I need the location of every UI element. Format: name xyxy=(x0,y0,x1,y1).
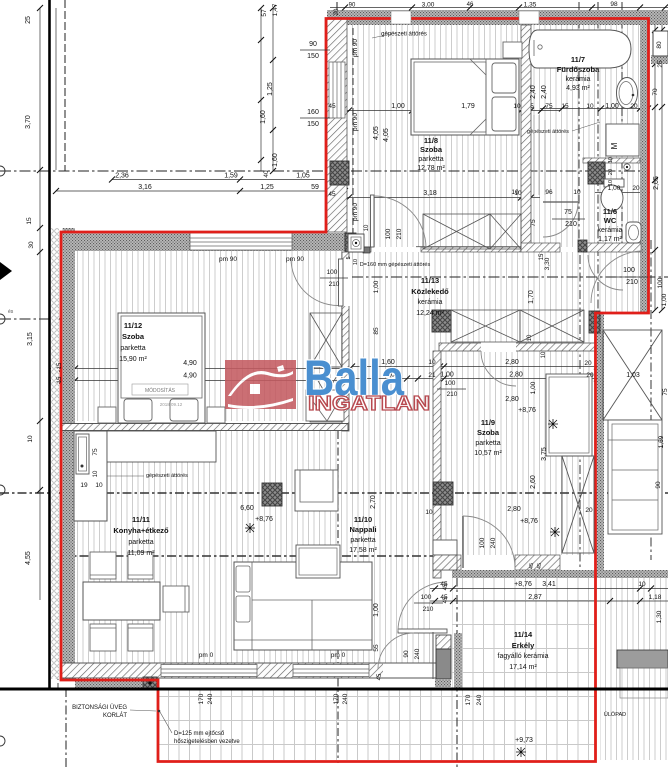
svg-text:2,65: 2,65 xyxy=(653,176,660,190)
svg-text:pm 0: pm 0 xyxy=(331,652,346,659)
svg-text:1,35: 1,35 xyxy=(524,2,537,9)
svg-text:30: 30 xyxy=(28,241,35,249)
svg-text:75: 75 xyxy=(662,388,668,396)
svg-text:pm 90: pm 90 xyxy=(352,113,359,131)
svg-text:gépészeti áttörés: gépészeti áttörés xyxy=(146,473,188,479)
svg-text:100: 100 xyxy=(479,537,486,548)
svg-text:1,59: 1,59 xyxy=(224,173,238,180)
svg-text:2,87: 2,87 xyxy=(528,594,542,601)
svg-text:45: 45 xyxy=(440,594,448,601)
svg-text:55: 55 xyxy=(373,644,380,652)
svg-text:2,80: 2,80 xyxy=(505,359,519,366)
svg-text:1,47: 1,47 xyxy=(272,3,279,16)
svg-text:20: 20 xyxy=(334,8,340,15)
svg-text:2,40: 2,40 xyxy=(530,85,537,99)
svg-text:20: 20 xyxy=(586,372,594,379)
svg-text:12,78 m²: 12,78 m² xyxy=(417,165,445,172)
svg-text:1,30: 1,30 xyxy=(656,610,663,623)
svg-text:11/9: 11/9 xyxy=(481,418,495,427)
svg-text:4,05: 4,05 xyxy=(373,126,380,140)
svg-text:59: 59 xyxy=(311,184,319,191)
svg-text:1,00: 1,00 xyxy=(608,185,621,192)
svg-text:2,36: 2,36 xyxy=(115,173,129,180)
svg-text:210: 210 xyxy=(329,281,340,288)
svg-text:1,00: 1,00 xyxy=(661,293,668,306)
svg-text:Szoba: Szoba xyxy=(420,145,443,154)
svg-text:75: 75 xyxy=(530,219,537,227)
svg-text:4,90: 4,90 xyxy=(183,373,197,380)
svg-text:45: 45 xyxy=(377,673,383,680)
svg-text:3,00: 3,00 xyxy=(422,2,435,9)
svg-text:20: 20 xyxy=(585,507,593,514)
svg-text:1,17 m²: 1,17 m² xyxy=(598,236,622,243)
svg-text:57: 57 xyxy=(261,9,268,17)
svg-text:10: 10 xyxy=(638,581,646,588)
svg-text:és: és xyxy=(8,309,14,315)
svg-text:2,60: 2,60 xyxy=(530,475,537,489)
svg-text:+9,73: +9,73 xyxy=(515,737,533,744)
svg-text:11/7: 11/7 xyxy=(571,55,585,64)
svg-text:20: 20 xyxy=(608,169,614,175)
svg-text:75: 75 xyxy=(564,209,572,216)
svg-text:90: 90 xyxy=(655,481,662,489)
svg-text:D=160 mm gépészeti áttörés: D=160 mm gépészeti áttörés xyxy=(360,262,431,268)
svg-text:20: 20 xyxy=(630,103,638,110)
svg-text:1,25: 1,25 xyxy=(260,184,274,191)
svg-text:6,60: 6,60 xyxy=(240,505,254,512)
svg-text:11/8: 11/8 xyxy=(424,136,438,145)
svg-text:10,57 m²: 10,57 m² xyxy=(474,450,502,457)
svg-text:45: 45 xyxy=(440,581,448,588)
svg-text:11/10: 11/10 xyxy=(354,515,372,524)
svg-text:WC: WC xyxy=(604,216,617,225)
svg-text:gépészeti áttörés: gépészeti áttörés xyxy=(527,129,569,135)
svg-text:45: 45 xyxy=(529,563,535,569)
svg-text:pm 90: pm 90 xyxy=(352,39,359,57)
svg-text:15,90 m²: 15,90 m² xyxy=(119,356,147,363)
svg-text:98: 98 xyxy=(610,1,618,8)
svg-text:M: M xyxy=(610,142,619,149)
svg-text:parketta: parketta xyxy=(128,539,153,546)
svg-text:3,16: 3,16 xyxy=(138,184,152,191)
svg-text:4,90: 4,90 xyxy=(183,360,197,367)
svg-text:pm 90: pm 90 xyxy=(286,256,304,263)
svg-text:100: 100 xyxy=(327,269,338,276)
svg-text:kerámia: kerámia xyxy=(566,76,591,83)
svg-text:45: 45 xyxy=(328,191,336,198)
svg-text:10: 10 xyxy=(353,259,359,265)
svg-text:3,41: 3,41 xyxy=(542,581,556,588)
svg-text:90: 90 xyxy=(349,3,356,9)
svg-text:11/14: 11/14 xyxy=(514,630,533,639)
svg-text:10: 10 xyxy=(513,103,521,110)
svg-text:KORLÁT: KORLÁT xyxy=(103,712,127,719)
svg-text:Fürdőszoba: Fürdőszoba xyxy=(557,65,600,74)
svg-text:21: 21 xyxy=(428,372,436,379)
svg-text:46: 46 xyxy=(467,2,474,8)
svg-text:1,60: 1,60 xyxy=(272,153,279,167)
svg-text:2,70: 2,70 xyxy=(370,495,377,509)
svg-text:11,09 m²: 11,09 m² xyxy=(127,550,155,557)
svg-text:100: 100 xyxy=(623,267,635,274)
svg-text:70: 70 xyxy=(652,88,659,96)
svg-text:17,58 m²: 17,58 m² xyxy=(349,547,377,554)
svg-text:17,14 m²: 17,14 m² xyxy=(509,664,537,671)
svg-text:11/6: 11/6 xyxy=(603,207,617,216)
svg-text:12,24 m²: 12,24 m² xyxy=(416,310,444,317)
svg-text:+8,76: +8,76 xyxy=(255,516,273,523)
svg-text:1,25: 1,25 xyxy=(267,82,274,96)
svg-text:1,00: 1,00 xyxy=(373,280,380,293)
svg-text:11/13: 11/13 xyxy=(421,276,439,285)
svg-text:Konyha+étkező: Konyha+étkező xyxy=(113,526,169,535)
svg-text:10: 10 xyxy=(573,189,581,196)
svg-text:4,55: 4,55 xyxy=(25,551,32,565)
svg-text:pm 0: pm 0 xyxy=(199,652,214,659)
svg-text:10: 10 xyxy=(527,334,533,341)
svg-text:1,60: 1,60 xyxy=(260,110,267,124)
svg-text:parketta: parketta xyxy=(120,345,145,352)
svg-text:Szoba: Szoba xyxy=(477,428,500,437)
svg-text:90: 90 xyxy=(309,41,317,48)
svg-text:10: 10 xyxy=(586,103,594,110)
svg-text:20: 20 xyxy=(632,185,640,192)
svg-text:2,80: 2,80 xyxy=(505,396,519,403)
svg-text:Közlekedő: Közlekedő xyxy=(411,287,449,296)
svg-text:210: 210 xyxy=(423,606,434,613)
svg-text:10: 10 xyxy=(425,509,433,516)
svg-text:3,30: 3,30 xyxy=(544,257,551,270)
svg-text:10: 10 xyxy=(608,157,614,163)
svg-text:160: 160 xyxy=(307,109,319,116)
svg-text:210: 210 xyxy=(447,391,458,398)
svg-text:100: 100 xyxy=(385,228,392,239)
svg-text:15: 15 xyxy=(57,376,63,383)
svg-text:4,93 m²: 4,93 m² xyxy=(566,85,590,92)
svg-text:240: 240 xyxy=(207,693,214,704)
svg-text:10: 10 xyxy=(541,351,547,358)
svg-text:5: 5 xyxy=(346,256,352,259)
svg-text:170: 170 xyxy=(465,694,472,705)
svg-text:75: 75 xyxy=(545,103,553,110)
svg-text:15: 15 xyxy=(26,217,33,225)
svg-text:15: 15 xyxy=(561,103,569,110)
svg-text:75: 75 xyxy=(92,448,99,456)
svg-text:1,00: 1,00 xyxy=(605,103,619,110)
svg-text:3,18: 3,18 xyxy=(423,190,437,197)
svg-text:40: 40 xyxy=(263,170,270,178)
svg-text:1,00: 1,00 xyxy=(530,381,537,394)
svg-text:parketta: parketta xyxy=(475,440,500,447)
svg-text:20: 20 xyxy=(584,360,592,367)
svg-text:+8,76: +8,76 xyxy=(520,518,538,525)
svg-text:45: 45 xyxy=(537,563,543,569)
svg-text:2,80: 2,80 xyxy=(507,506,521,513)
svg-text:240: 240 xyxy=(342,693,349,704)
svg-text:1,03: 1,03 xyxy=(626,372,640,379)
svg-text:100: 100 xyxy=(657,277,664,288)
svg-text:1,69: 1,69 xyxy=(658,435,665,448)
svg-text:170: 170 xyxy=(198,693,205,704)
svg-text:90: 90 xyxy=(403,650,410,658)
svg-text:85: 85 xyxy=(373,327,380,335)
svg-text:Erkély: Erkély xyxy=(512,641,535,650)
svg-text:2018.09.12: 2018.09.12 xyxy=(160,402,183,407)
svg-text:240: 240 xyxy=(414,648,421,659)
svg-text:210: 210 xyxy=(565,221,577,228)
svg-text:19: 19 xyxy=(80,482,88,489)
svg-text:2,80: 2,80 xyxy=(509,372,523,379)
svg-text:45: 45 xyxy=(328,103,336,110)
svg-text:100: 100 xyxy=(445,380,456,387)
svg-text:11/12: 11/12 xyxy=(124,321,142,330)
svg-text:25: 25 xyxy=(657,60,664,68)
svg-text:10: 10 xyxy=(93,470,99,477)
svg-text:150: 150 xyxy=(307,121,319,128)
svg-text:1,18: 1,18 xyxy=(649,594,662,601)
svg-text:fagyálló kerámia: fagyálló kerámia xyxy=(498,653,549,660)
svg-text:1,05: 1,05 xyxy=(296,173,310,180)
svg-text:kerámia: kerámia xyxy=(418,299,443,306)
svg-text:10: 10 xyxy=(27,435,34,443)
svg-text:1,79: 1,79 xyxy=(461,103,475,110)
svg-text:hőszigetelésben vezetve: hőszigetelésben vezetve xyxy=(174,739,240,745)
svg-text:D=125 mm ejtőcső: D=125 mm ejtőcső xyxy=(174,731,225,737)
svg-text:+8,76: +8,76 xyxy=(514,581,532,588)
svg-text:kerámia: kerámia xyxy=(598,227,623,234)
svg-text:1,70: 1,70 xyxy=(528,290,535,304)
svg-text:INGATLAN: INGATLAN xyxy=(308,393,430,415)
svg-text:100: 100 xyxy=(421,594,432,601)
svg-text:10: 10 xyxy=(95,482,103,489)
svg-text:1,00: 1,00 xyxy=(440,372,454,379)
svg-text:3,70: 3,70 xyxy=(25,115,32,129)
svg-text:11/11: 11/11 xyxy=(132,515,150,524)
svg-text:pm 90: pm 90 xyxy=(352,203,359,221)
svg-text:240: 240 xyxy=(476,694,483,705)
svg-text:1,00: 1,00 xyxy=(391,103,405,110)
svg-text:+8,76: +8,76 xyxy=(518,407,536,414)
svg-text:150: 150 xyxy=(307,53,319,60)
svg-text:80: 80 xyxy=(656,41,663,49)
svg-text:10: 10 xyxy=(364,224,370,231)
svg-text:3,15: 3,15 xyxy=(27,332,34,346)
svg-text:10: 10 xyxy=(511,189,519,196)
svg-text:pm 90: pm 90 xyxy=(219,256,237,263)
svg-text:Nappali: Nappali xyxy=(349,525,376,534)
svg-text:ÜLŐPAD: ÜLŐPAD xyxy=(604,711,626,718)
svg-text:2,40: 2,40 xyxy=(541,85,548,99)
svg-text:170: 170 xyxy=(333,693,340,704)
svg-text:parketta: parketta xyxy=(418,156,443,163)
svg-text:4,05: 4,05 xyxy=(383,128,390,142)
svg-text:96: 96 xyxy=(545,189,553,196)
svg-text:3,75: 3,75 xyxy=(541,447,548,461)
svg-text:Szoba: Szoba xyxy=(122,332,145,341)
svg-text:210: 210 xyxy=(626,279,638,286)
svg-text:240: 240 xyxy=(490,537,497,548)
svg-text:15: 15 xyxy=(57,362,63,369)
svg-text:MÓDOSÍTÁS: MÓDOSÍTÁS xyxy=(145,387,176,394)
svg-text:parketta: parketta xyxy=(350,537,375,544)
svg-text:10: 10 xyxy=(428,359,436,366)
svg-text:25: 25 xyxy=(25,16,32,24)
svg-text:210: 210 xyxy=(396,228,403,239)
svg-text:1,00: 1,00 xyxy=(373,603,380,617)
svg-text:BIZTONSÁGI ÜVEG: BIZTONSÁGI ÜVEG xyxy=(72,704,127,711)
